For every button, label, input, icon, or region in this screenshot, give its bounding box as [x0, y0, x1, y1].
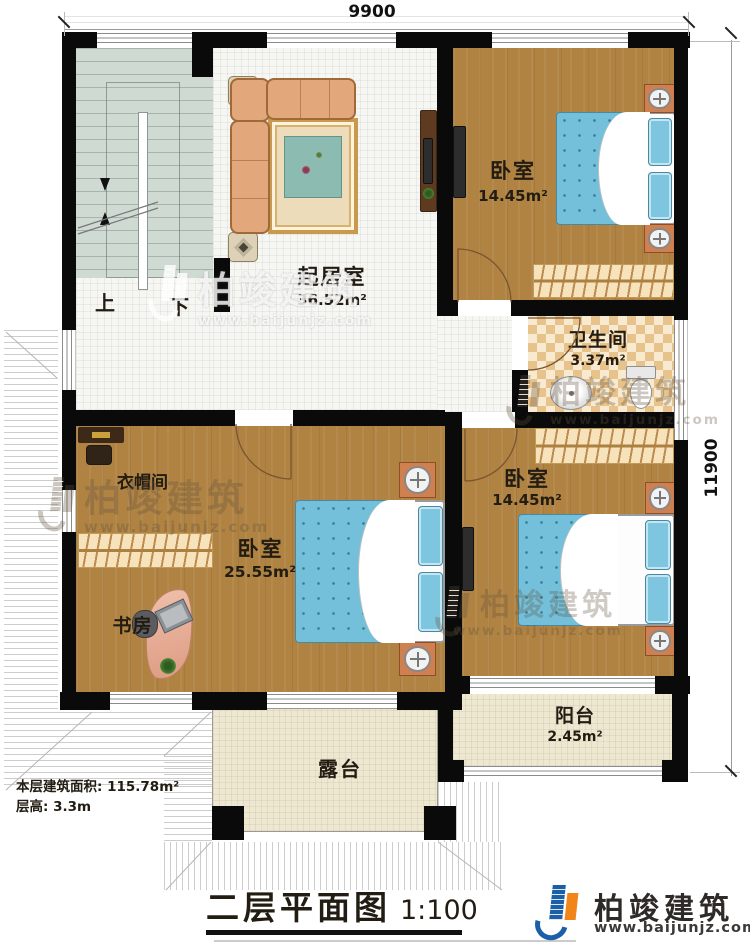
- balcony-corner: [662, 760, 688, 782]
- pillow: [418, 506, 443, 566]
- room-area-bedroom-tr: 14.45m²: [468, 188, 558, 205]
- vanity-items: [92, 432, 110, 438]
- sofa-corner: [230, 78, 270, 122]
- tv-icon: [423, 138, 433, 184]
- window: [492, 33, 628, 46]
- window: [110, 694, 192, 706]
- bed-blanket-fold: [598, 112, 650, 225]
- wall: [628, 32, 690, 48]
- closet: [535, 428, 674, 464]
- balcony-corner: [438, 760, 464, 782]
- company-url: www.baijunjz.com: [594, 920, 750, 936]
- nightstand: [644, 84, 675, 113]
- room-label-bedroom-tr: 卧室: [468, 160, 558, 183]
- dimension-right-line: [731, 40, 732, 776]
- tv-icon: [462, 527, 474, 591]
- wall: [437, 300, 458, 316]
- wall: [445, 676, 470, 694]
- rug-center: [284, 136, 342, 198]
- window: [62, 330, 76, 390]
- vanity-chair: [86, 445, 112, 465]
- window: [267, 33, 396, 46]
- stair-arrow-down: [100, 178, 110, 191]
- room-area-bedroom-br: 14.45m²: [478, 492, 576, 509]
- terrace-column: [424, 806, 456, 840]
- side-table-lamp: [228, 232, 258, 262]
- wall: [655, 676, 690, 694]
- sink-drain: [569, 391, 574, 396]
- pillow: [645, 520, 671, 570]
- dimension-top-line: [64, 29, 689, 30]
- closet: [78, 533, 213, 568]
- wall: [192, 32, 267, 48]
- room-label-terrace: 露台: [300, 758, 380, 780]
- wall-hall-bedroom: [445, 412, 462, 676]
- roof-left: [4, 330, 58, 712]
- wall-right: [674, 48, 688, 320]
- nightstand: [399, 642, 436, 676]
- dimension-right: 11900: [702, 438, 722, 498]
- stair-wall-stub: [214, 258, 230, 312]
- wall: [396, 32, 492, 48]
- pillow: [645, 574, 671, 624]
- wall-master-top: [76, 410, 235, 426]
- stair-down-label: 下: [166, 296, 192, 318]
- nightstand: [644, 224, 675, 253]
- room-label-living: 起居室: [272, 266, 392, 289]
- plan-scale: 1:100: [400, 896, 470, 926]
- room-label-master: 卧室: [218, 538, 303, 561]
- room-area-bathroom: 3.37m²: [548, 354, 648, 369]
- lamp-icon: [234, 238, 252, 256]
- stair-wall-stub: [192, 48, 213, 77]
- window: [62, 490, 76, 532]
- company-logo-icon: [536, 884, 586, 940]
- terrace-column: [212, 806, 244, 840]
- roof-terrace-left: [164, 756, 212, 842]
- wall-master-top: [293, 410, 445, 426]
- wall-bathroom-left: [512, 370, 528, 412]
- wall-right: [674, 440, 688, 692]
- rug-flower: [302, 166, 310, 174]
- wall: [62, 32, 97, 48]
- wall-bottom: [60, 692, 110, 710]
- sofa-top: [266, 78, 356, 120]
- wall-living-bedroom: [437, 48, 453, 300]
- balcony-slider: [470, 678, 655, 690]
- dimension-top: 9900: [322, 2, 422, 24]
- room-area-balcony: 2.45m²: [535, 730, 615, 745]
- bathroom-window: [674, 320, 688, 440]
- rug: [268, 118, 358, 234]
- floor-plan: 9900 11900: [0, 0, 750, 952]
- balcony-railing-window: [464, 766, 662, 776]
- nightstand: [399, 462, 436, 498]
- room-area-living: 36.52m²: [272, 292, 392, 309]
- room-label-bathroom: 卫生间: [548, 330, 648, 351]
- rug-flower: [316, 152, 322, 158]
- company-logo: 柏竣建筑 www.baijunjz.com: [536, 880, 746, 944]
- floor-area-note: 本层建筑面积: 115.78m²: [16, 780, 246, 795]
- nightstand: [645, 626, 675, 656]
- closet: [533, 264, 674, 298]
- plant-icon: [423, 188, 434, 199]
- room-label-cloakroom: 衣帽间: [100, 474, 185, 493]
- terrace-door-window: [267, 694, 397, 706]
- nightstand: [645, 482, 675, 514]
- vanity-table: [78, 427, 124, 443]
- stair-arrow-up: [100, 212, 110, 225]
- sofa-left: [230, 120, 270, 234]
- pillow: [648, 118, 672, 166]
- hallway-niche-floor: [437, 316, 512, 412]
- plant-icon: [160, 658, 176, 674]
- room-label-bedroom-br: 卧室: [482, 468, 572, 491]
- tv-icon: [453, 126, 466, 198]
- title-underline-thick: [206, 930, 462, 935]
- pillow: [648, 172, 672, 220]
- bed-blanket-fold: [358, 500, 415, 643]
- window: [97, 33, 192, 46]
- wall-bathroom-bottom: [515, 412, 676, 428]
- title-underline-thin: [214, 940, 576, 942]
- room-label-study: 书房: [95, 616, 170, 637]
- plan-title: 二层平面图: [206, 890, 401, 926]
- bed-blanket-fold: [560, 514, 618, 626]
- floor-height-note: 层高: 3.3m: [16, 800, 176, 815]
- room-label-balcony: 阳台: [535, 706, 615, 727]
- stair-rail: [138, 112, 148, 290]
- wall-bottom: [192, 692, 267, 710]
- roof-bottom-band: [164, 842, 504, 890]
- room-area-master: 25.55m²: [210, 564, 310, 581]
- stair-up-label: 上: [92, 292, 118, 314]
- wall: [511, 300, 676, 316]
- pillow: [418, 572, 443, 632]
